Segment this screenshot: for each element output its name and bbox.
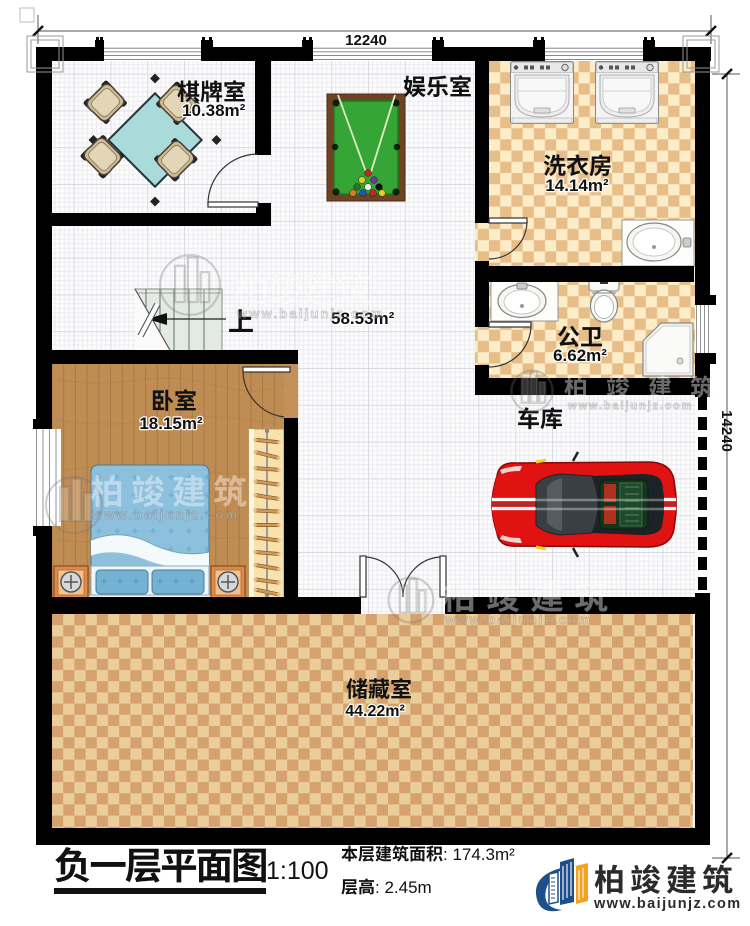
svg-text:: 2.45m: : 2.45m [375, 878, 432, 897]
svg-text:www.baijunjz.com: www.baijunjz.com [593, 896, 742, 912]
svg-text:14240: 14240 [718, 410, 735, 452]
svg-text:12240: 12240 [345, 32, 387, 49]
svg-text:1:100: 1:100 [266, 857, 329, 885]
svg-text:6.62m²: 6.62m² [553, 346, 607, 365]
svg-text:44.22m²: 44.22m² [345, 703, 405, 720]
svg-text:www.baijunjz.com: www.baijunjz.com [567, 400, 693, 412]
svg-text:10.38m²: 10.38m² [182, 101, 246, 120]
svg-text:18.15m²: 18.15m² [139, 414, 203, 433]
svg-text:: 174.3m²: : 174.3m² [443, 845, 515, 864]
svg-text:14.14m²: 14.14m² [545, 176, 609, 195]
svg-text:www.baijunjz.com: www.baijunjz.com [236, 306, 384, 321]
svg-text:www.baijunjz.com: www.baijunjz.com [91, 507, 239, 522]
svg-text:www.baijunjz.com: www.baijunjz.com [444, 612, 592, 627]
